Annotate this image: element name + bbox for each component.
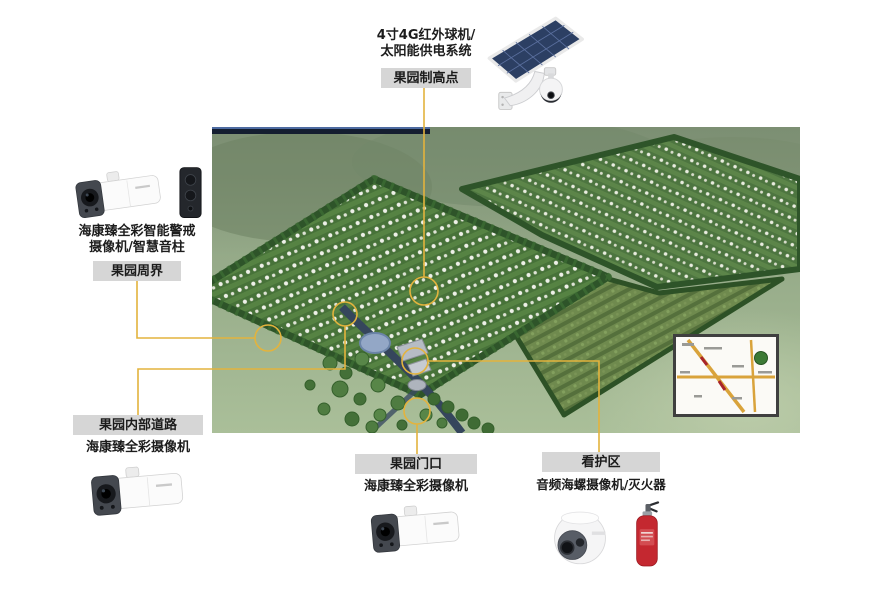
orchard-aerial-photo	[212, 127, 800, 433]
care-area-device-label: 音频海螺摄像机/灭火器	[533, 477, 669, 492]
annotation-internal-road: 果园内部道路 海康臻全彩摄像机	[73, 415, 203, 520]
diagram-canvas: 4寸4G红外球机/ 太阳能供电系统 果园制高点	[0, 0, 880, 595]
pond	[360, 333, 390, 353]
smart-audio-column-icon	[177, 166, 204, 220]
photo-top-bar	[212, 127, 430, 134]
annotation-care-area: 看护区 音频海螺摄像机/灭火器	[533, 452, 669, 574]
location-map-inset	[675, 336, 778, 416]
solar-ptz-camera-icon	[476, 10, 588, 114]
annotation-perimeter: 海康臻全彩智能警戒 摄像机/智慧音柱 果园周界	[58, 166, 216, 281]
bullet-camera-icon	[84, 457, 193, 524]
annotation-gate: 果园门口 海康臻全彩摄像机	[355, 454, 477, 557]
highpoint-device-label-line2: 太阳能供电系统	[368, 44, 484, 60]
gate-zone-box: 果园门口	[355, 454, 477, 474]
internal-road-device-label: 海康臻全彩摄像机	[73, 440, 203, 456]
perimeter-device-label-line2: 摄像机/智慧音柱	[58, 240, 216, 256]
internal-road-zone-box: 果园内部道路	[73, 415, 203, 435]
perimeter-device-label-line1: 海康臻全彩智能警戒	[58, 224, 216, 240]
gate-device-label: 海康臻全彩摄像机	[355, 479, 477, 495]
perimeter-zone-box: 果园周界	[93, 261, 181, 281]
fire-extinguisher-icon	[627, 496, 661, 574]
highpoint-device-label-line1: 4寸4G红外球机/	[368, 28, 484, 44]
care-area-zone-box: 看护区	[542, 452, 660, 472]
bullet-camera-icon	[364, 497, 469, 562]
highpoint-zone-box: 果园制高点	[381, 68, 470, 88]
turret-camera-icon	[541, 506, 619, 574]
bullet-camera-icon	[67, 161, 169, 227]
orchard-rendering	[212, 127, 800, 433]
annotation-highpoint: 4寸4G红外球机/ 太阳能供电系统 果园制高点	[368, 28, 484, 88]
